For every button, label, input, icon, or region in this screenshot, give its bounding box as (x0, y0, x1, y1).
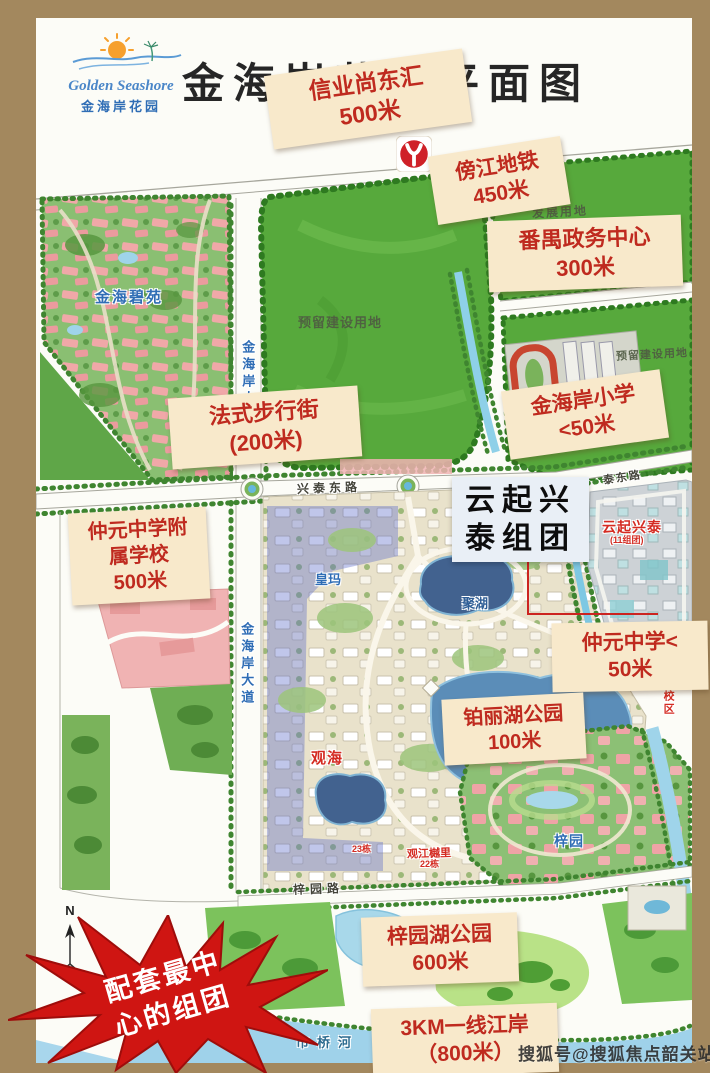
callout-street: 法式步行街 (200米) (168, 385, 363, 469)
site-plan-poster: Golden Seashore 金海岸花园 金海岸花园平面图 发展用地 预留建设… (0, 0, 710, 1073)
reserved-land-top-label: 预留建设用地 (298, 316, 382, 330)
huangma-label: 皇玛 (315, 573, 341, 587)
callout-zhongyuan-distance: 50米 (556, 655, 704, 685)
callout-affiliated-school: 仲元中学附 属学校 500米 (68, 506, 211, 605)
yunqi-sub-label: (11组团) (610, 536, 644, 546)
boulevard-label-lower: 金海岸大道 (239, 622, 253, 707)
starburst-badge: 配套最中 心的组团 (8, 915, 328, 1073)
yunqi-xingtai-label: 云起兴泰 (602, 520, 662, 535)
ziyuan-label: 梓园 (554, 834, 584, 849)
callout-ziyuanhu-distance: 600米 (366, 947, 515, 979)
xingtai-east-road-label: 兴泰东路 (297, 481, 361, 496)
jinhai-biyuan-label: 金海碧苑 (95, 290, 163, 307)
callout-ziyuanhu: 梓园湖公园 600米 (361, 912, 519, 986)
metro-station-icon (396, 136, 432, 172)
callout-ziyuanhu-name: 梓园湖公园 (365, 919, 514, 951)
callout-panyu: 番禺政务中心 300米 (487, 215, 683, 293)
block22-label: 22栋 (420, 860, 439, 870)
logo-sun-waves-icon (55, 30, 187, 74)
guanhai-label: 观海 (311, 751, 343, 768)
watermark: 搜狐号@搜狐焦点韶关站 (518, 1040, 710, 1065)
callout-bolihu: 铂丽湖公园 100米 (441, 692, 586, 765)
golden-seashore-logo: Golden Seashore 金海岸花园 (55, 30, 187, 115)
cluster-name-line1: 云起兴 (454, 482, 587, 520)
juhu-lake-label: 聚湖 (462, 597, 488, 611)
callout-affiliated-school-distance: 500米 (75, 566, 206, 599)
logo-chinese-text: 金海岸花园 (55, 96, 187, 115)
callout-zhongyuan: 仲元中学< 50米 (551, 621, 708, 692)
cluster-name-line2: 泰组团 (454, 520, 587, 558)
callout-zhongyuan-name: 仲元中学< (556, 628, 704, 658)
cluster-name-box: 云起兴 泰组团 (452, 477, 589, 562)
logo-english-text: Golden Seashore (55, 79, 187, 94)
block23-label: 23栋 (352, 845, 371, 855)
